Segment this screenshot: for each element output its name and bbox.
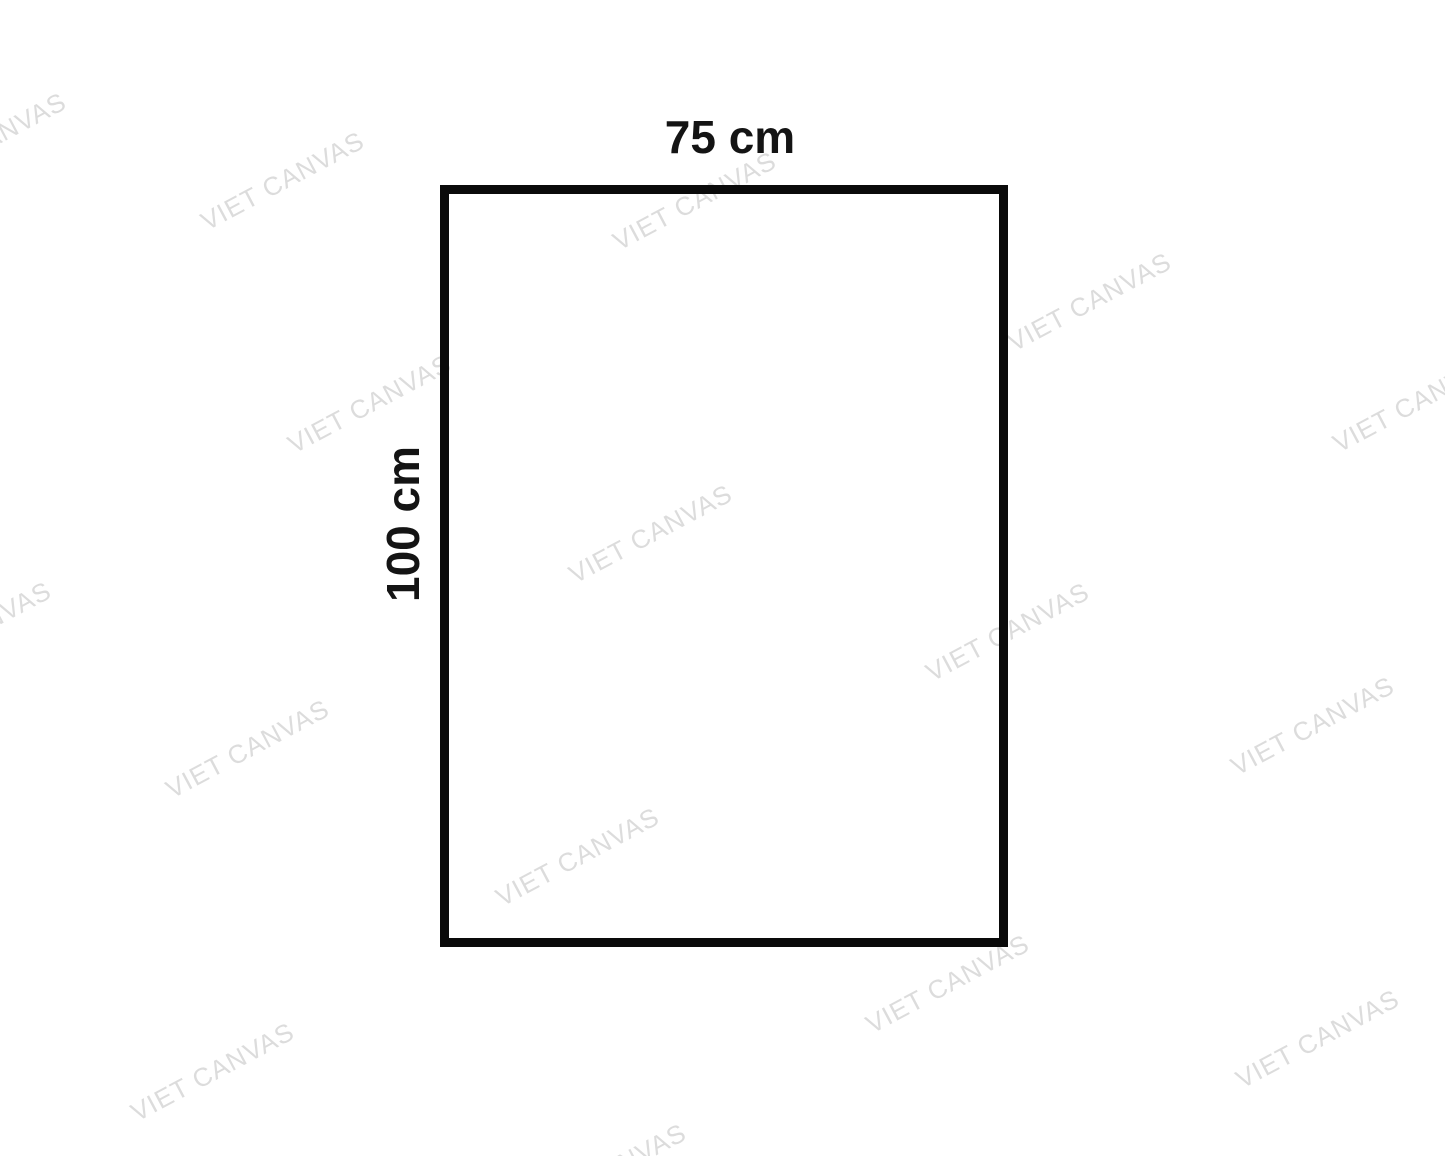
height-dimension-label: 100 cm <box>378 452 428 602</box>
watermark-text: VIET CANVAS <box>160 692 335 806</box>
watermark-text: VIET CANVAS <box>125 1015 300 1129</box>
watermark-text: VIET CANVAS <box>0 85 72 199</box>
watermark-text: VIET CANVAS <box>1327 346 1445 460</box>
watermark-text: VIET CANVAS <box>1002 245 1177 359</box>
watermark-text: VIET CANVAS <box>1225 669 1400 783</box>
width-dimension-label: 75 cm <box>654 112 806 162</box>
watermark-text: VIET CANVAS <box>195 124 370 238</box>
diagram-canvas: VIET CANVASVIET CANVASVIET CANVASVIET CA… <box>0 0 1445 1156</box>
canvas-size-rectangle <box>440 185 1008 947</box>
watermark-text: VIET CANVAS <box>517 1116 692 1156</box>
watermark-text: VIET CANVAS <box>282 347 457 461</box>
watermark-text: VIET CANVAS <box>0 574 57 688</box>
watermark-text: VIET CANVAS <box>1230 982 1405 1096</box>
